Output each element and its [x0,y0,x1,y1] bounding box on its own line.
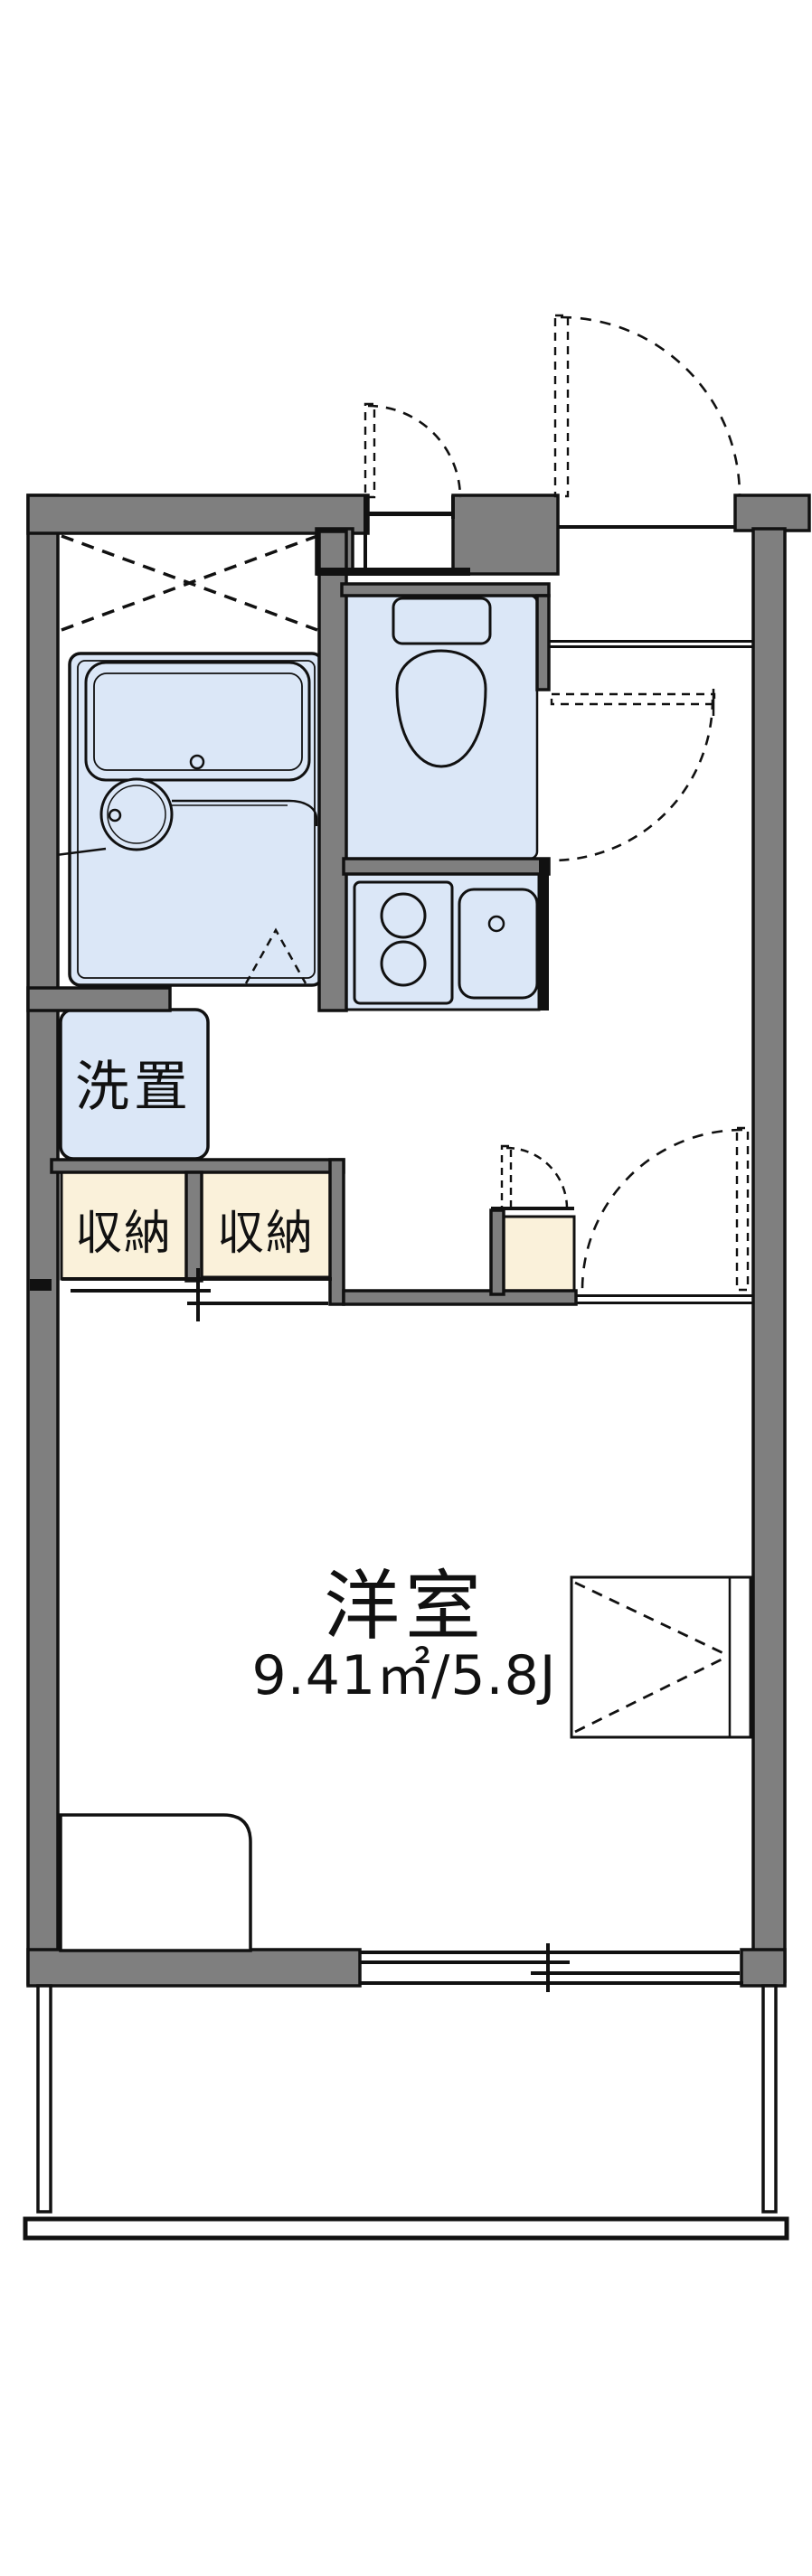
bathroom-unit [56,653,323,985]
wall-toilet-right [537,596,549,690]
closet-slide-panel-b [187,1302,328,1305]
toilet-fixture [393,598,490,766]
wall-bath-toilet-divider [319,531,346,1011]
porch-bottom-line [316,568,470,576]
wall-bath-bottom [28,988,170,1011]
entrance-door-arc [561,317,740,496]
wall-right [753,529,785,1981]
balcony-edge-bar [25,2219,787,2238]
storage-right-label: 収納 [217,1207,315,1261]
wall-shoebox-left [491,1210,504,1294]
mainroom-doorway-line [576,1294,753,1297]
washroom-door-leaf [502,1146,511,1208]
room-area-label: 9.41㎡/5.8J [252,1644,557,1707]
floor-plan: 洗置 収納 収納 洋室 9.41㎡/5.8J [0,0,812,2576]
genkan-step-line-2 [550,645,753,648]
wall-toilet-top [342,584,549,596]
porch-left-jamb [364,495,367,571]
toilet-tank [393,598,490,644]
balcony-rail-left [38,1986,51,2212]
washer-label: 洗置 [75,1056,193,1119]
floor-plan-drawing: 洗置 収納 収納 洋室 9.41㎡/5.8J [0,0,812,2576]
kitchen-right-wall-line [539,859,549,1011]
closet-door-left-stop [30,1279,52,1291]
bed [61,1815,250,1951]
entrance-door-leaf [555,315,568,496]
entrance-threshold [558,525,735,529]
closet-slide-center-tick [196,1268,200,1321]
mainroom-door-arc [582,1130,742,1290]
wall-top-right [735,495,809,531]
mainroom-doorway-line-2 [576,1302,753,1304]
window-panel-left [360,1960,570,1964]
storage-left-label: 収納 [75,1207,173,1261]
balcony-rail-right [763,1986,776,2212]
wall-storage-top [52,1160,344,1172]
porch-door-leaf [365,404,374,497]
wall-storage-right [330,1160,344,1304]
window-bottom-line [360,1981,743,1985]
closet-slide-panel-a [71,1289,211,1293]
wall-bottom [28,1950,360,1986]
wall-bottom-right-corner [741,1950,785,1986]
toilet-door-leaf [552,694,714,704]
window-center-tick [546,1943,550,1992]
wall-left [28,495,58,1984]
mainroom-door-leaf [737,1128,748,1290]
shoe-box [504,1217,574,1293]
closet-cabinet [571,1577,751,1737]
porch-step-line [366,512,452,516]
wall-kitchen-top [344,859,549,874]
balcony [25,1986,787,2238]
room-name-label: 洋室 [324,1562,486,1650]
wall-top-mid-block [453,495,558,574]
wash-basin [101,779,172,850]
porch-door-arc [368,406,460,498]
toilet-door-arc [552,700,713,860]
wall-storage-divider [186,1172,202,1281]
window-panel-right [531,1971,740,1975]
washroom-door-arc [506,1148,567,1208]
upper-closet-x-mark [61,536,317,630]
wall-mainroom-top [344,1291,576,1304]
genkan-step-line [550,640,753,643]
